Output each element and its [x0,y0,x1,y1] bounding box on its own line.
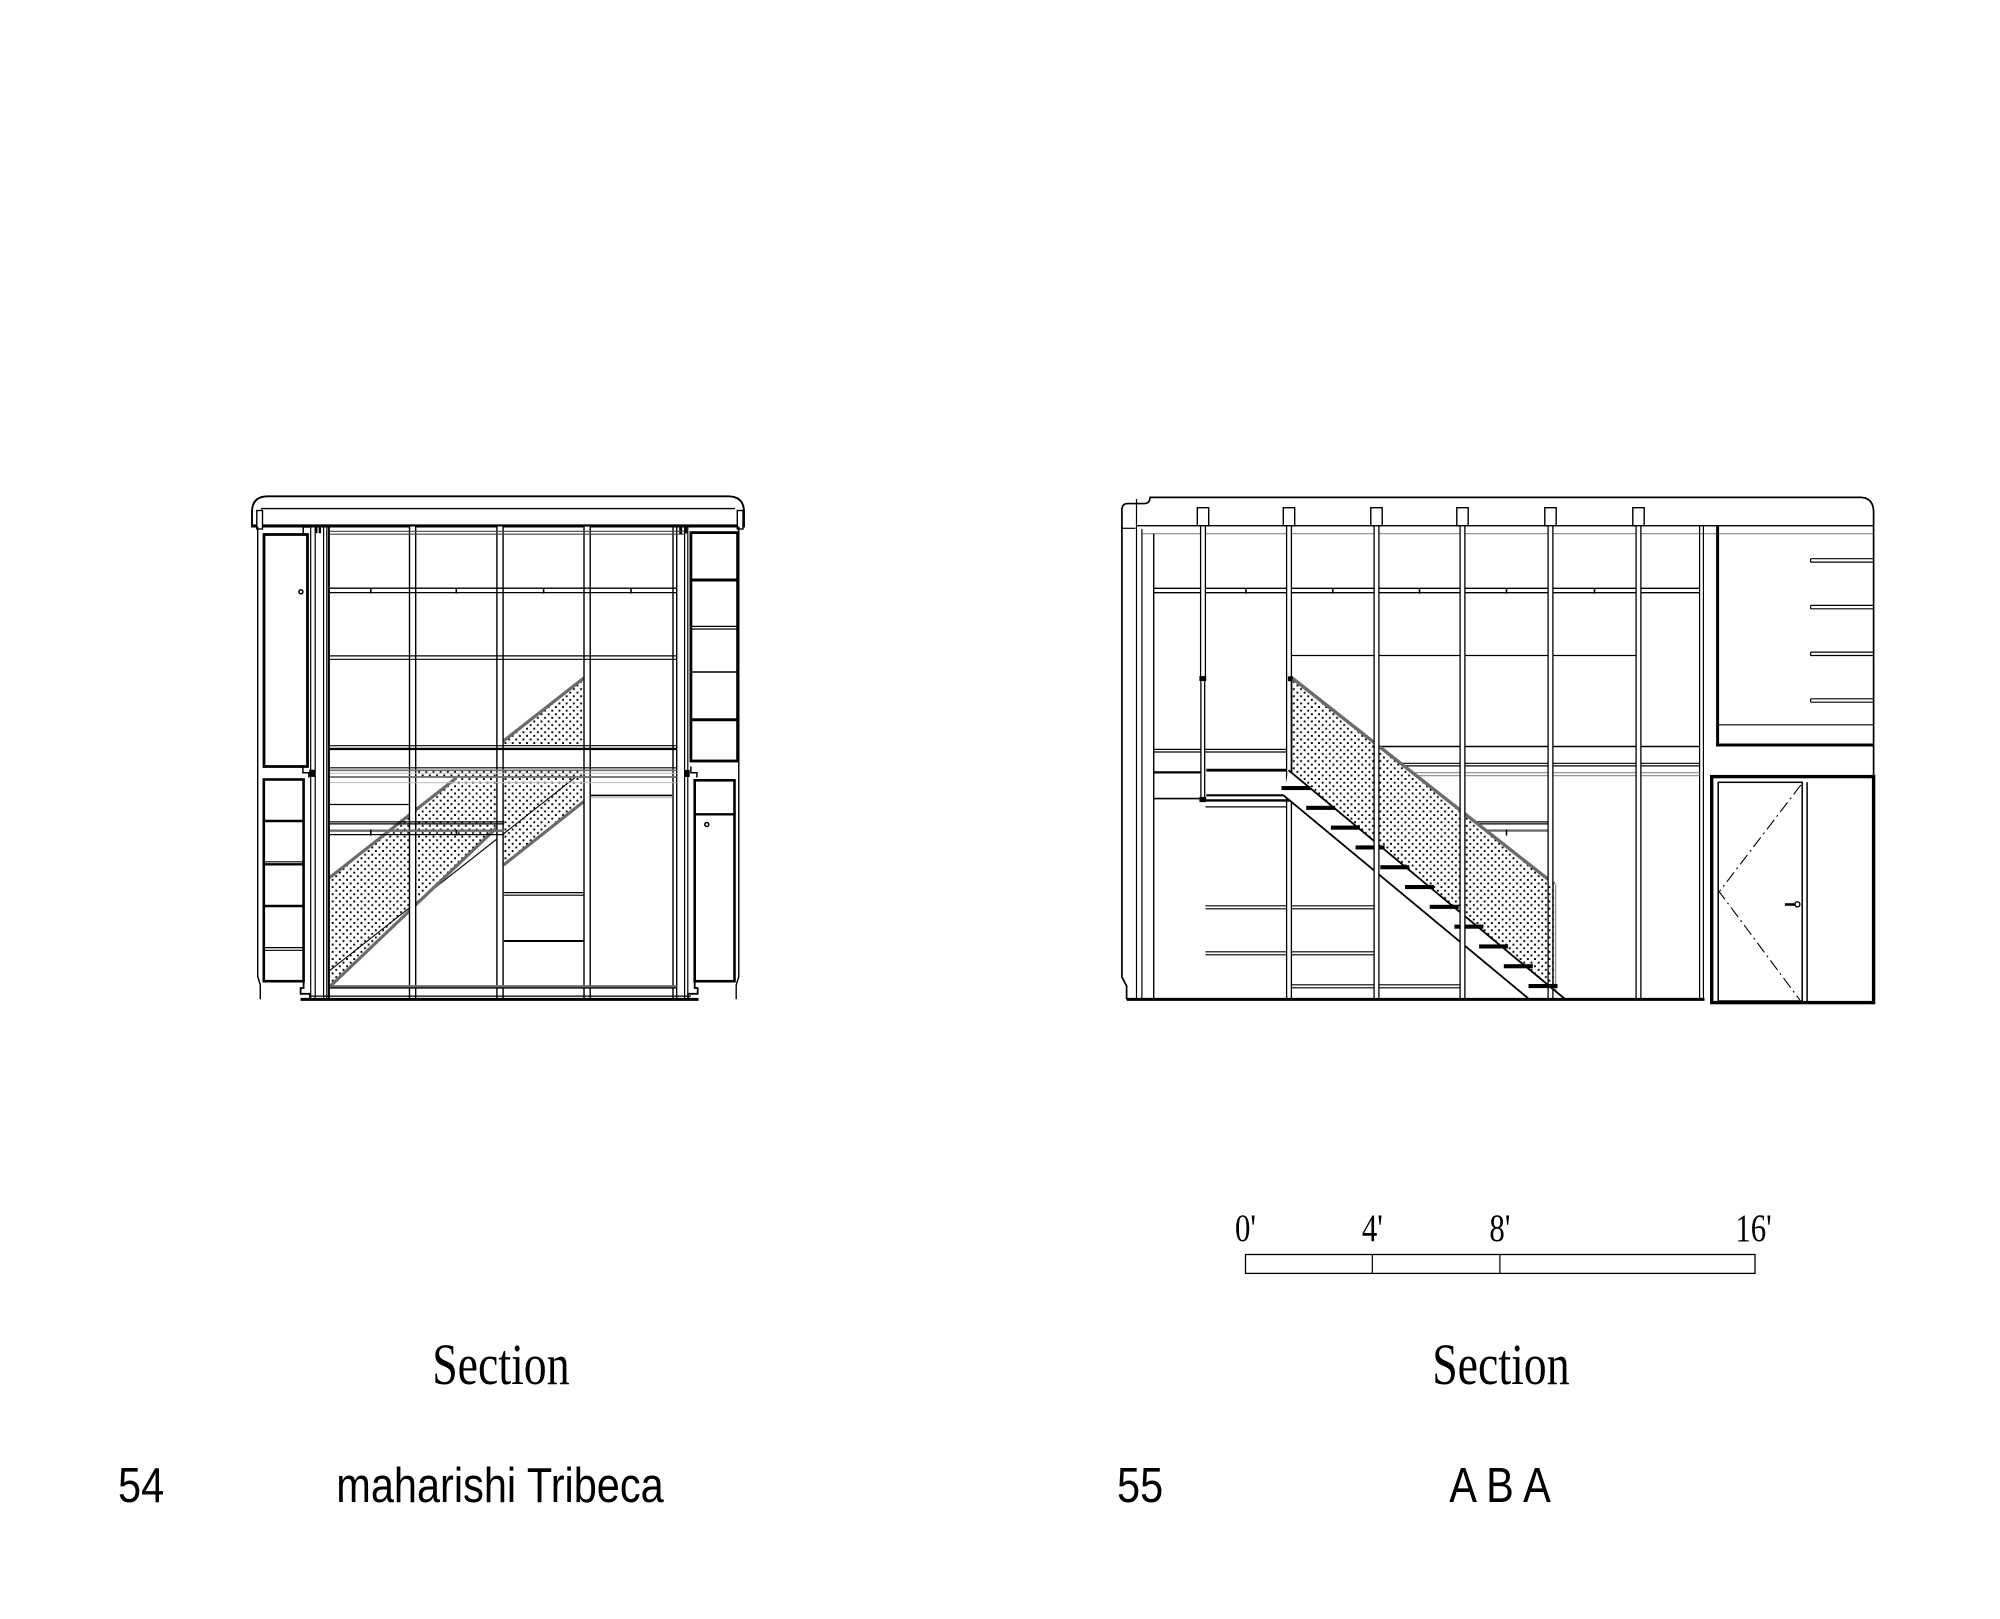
svg-text:A B A: A B A [1449,1458,1551,1513]
svg-text:Section: Section [1432,1333,1569,1397]
svg-text:16': 16' [1735,1205,1771,1250]
svg-text:55: 55 [1117,1458,1163,1513]
svg-text:4': 4' [1362,1205,1383,1250]
svg-text:54: 54 [118,1458,164,1513]
svg-text:0': 0' [1235,1205,1256,1250]
svg-text:maharishi Tribeca: maharishi Tribeca [336,1458,664,1513]
svg-text:Section: Section [432,1333,569,1397]
svg-text:8': 8' [1489,1205,1510,1250]
